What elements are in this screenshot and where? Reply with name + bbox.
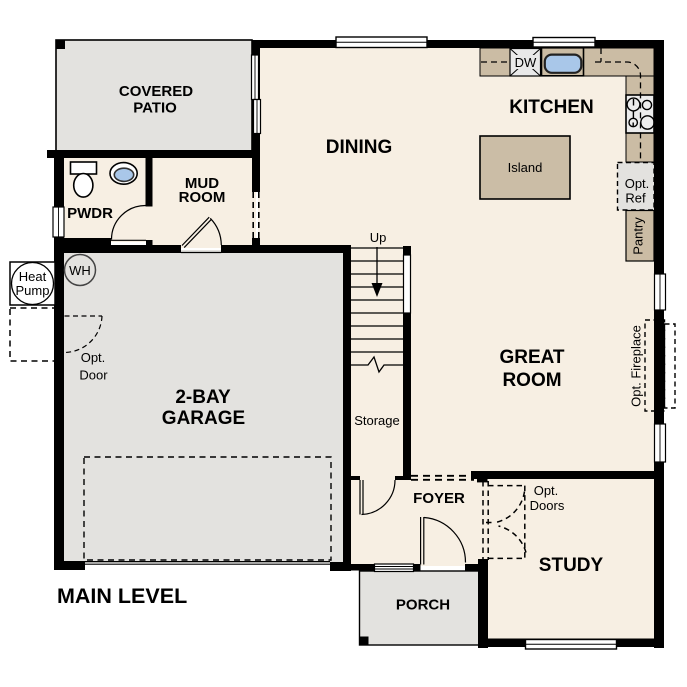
svg-text:Ref: Ref [625, 191, 646, 206]
svg-text:PWDR: PWDR [67, 205, 113, 222]
svg-text:WH: WH [69, 263, 91, 278]
svg-text:Island: Island [508, 160, 543, 175]
svg-text:Storage: Storage [354, 413, 400, 428]
svg-text:KITCHEN: KITCHEN [509, 97, 593, 118]
svg-text:MAIN LEVEL: MAIN LEVEL [57, 584, 187, 608]
svg-text:Pump: Pump [16, 283, 50, 298]
svg-text:STUDY: STUDY [539, 555, 604, 576]
svg-text:PATIO: PATIO [133, 100, 177, 117]
svg-text:GARAGE: GARAGE [162, 408, 245, 429]
svg-text:Heat: Heat [19, 269, 47, 284]
svg-text:PORCH: PORCH [396, 597, 450, 614]
svg-text:Pantry: Pantry [630, 217, 645, 255]
svg-text:Opt.: Opt. [81, 350, 106, 365]
svg-text:Opt. Fireplace: Opt. Fireplace [628, 325, 643, 407]
svg-text:Doors: Doors [530, 498, 565, 513]
svg-text:ROOM: ROOM [502, 370, 561, 391]
svg-text:GREAT: GREAT [499, 347, 564, 368]
svg-text:Opt.: Opt. [534, 483, 559, 498]
svg-text:Opt.: Opt. [625, 176, 650, 191]
svg-text:Door: Door [79, 368, 108, 383]
svg-text:ROOM: ROOM [179, 189, 226, 206]
svg-text:DINING: DINING [326, 137, 393, 158]
svg-text:COVERED: COVERED [119, 83, 193, 100]
svg-text:2-BAY: 2-BAY [175, 387, 231, 408]
svg-text:DW: DW [515, 55, 537, 70]
svg-text:FOYER: FOYER [413, 490, 465, 507]
svg-text:Up: Up [370, 230, 387, 245]
